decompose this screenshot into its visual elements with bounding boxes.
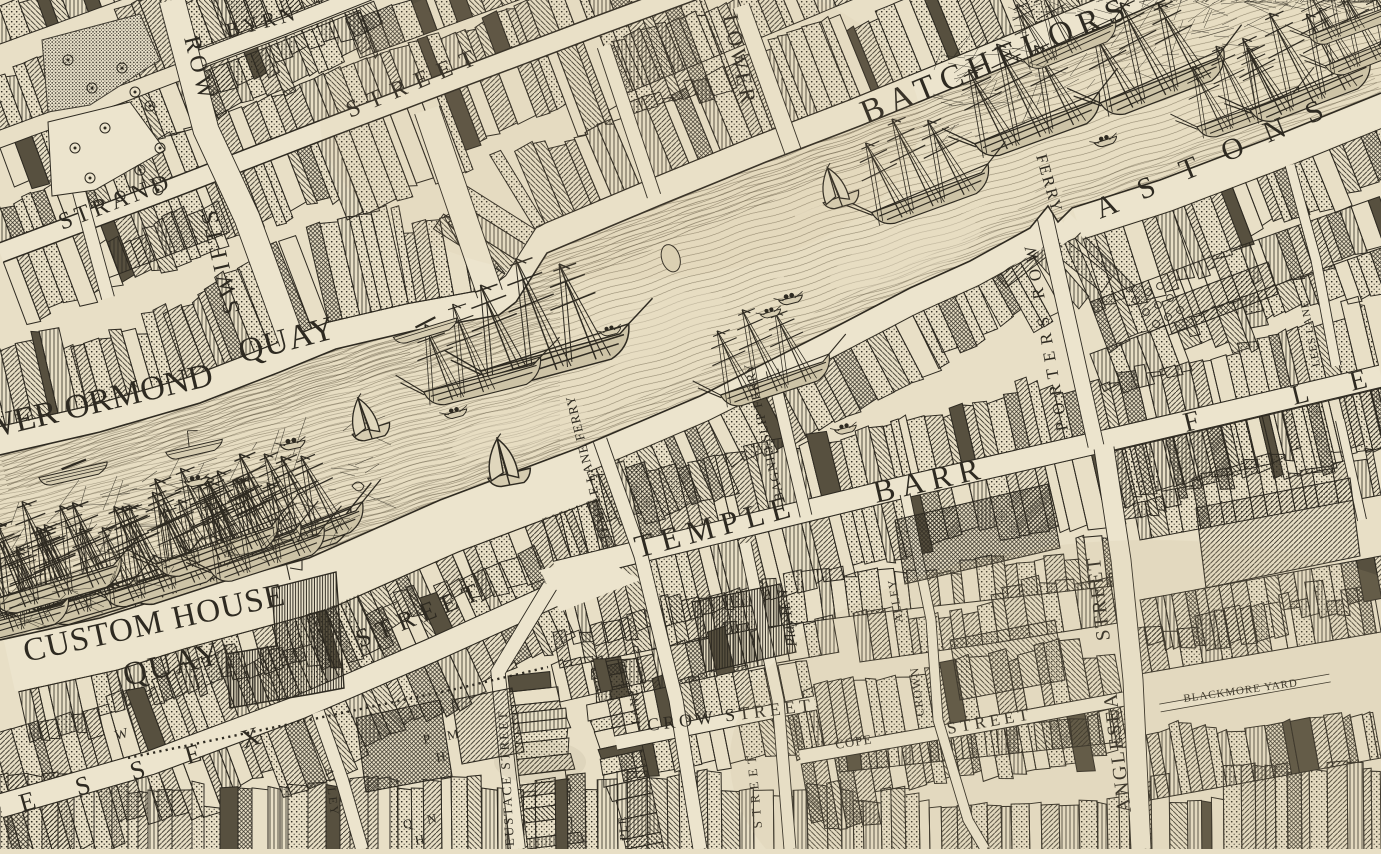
svg-text:PLE: PLE — [615, 815, 631, 840]
